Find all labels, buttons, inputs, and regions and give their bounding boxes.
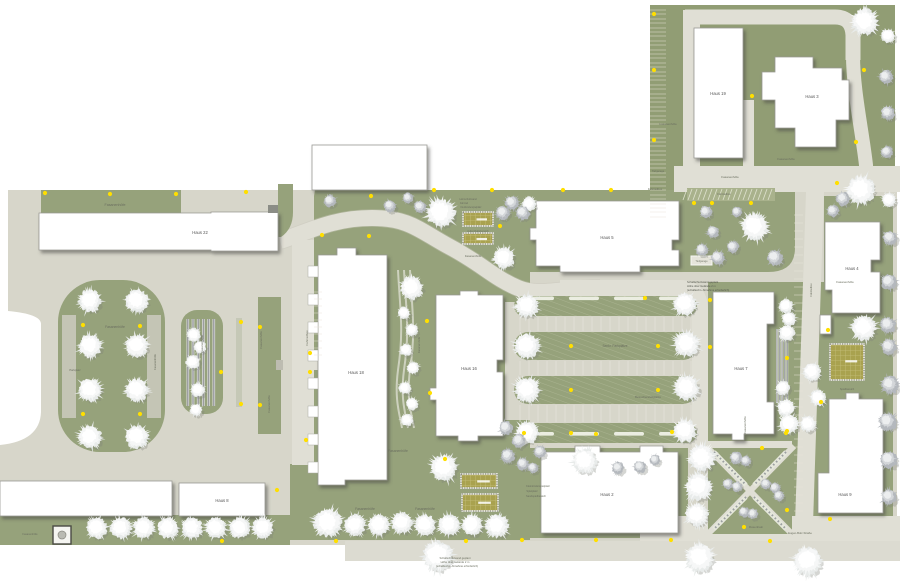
svg-text:Sandspielbereich: Sandspielbereich (526, 494, 546, 498)
svg-text:Haus 22: Haus 22 (192, 230, 208, 235)
svg-text:Rosenhain: Rosenhain (749, 525, 764, 529)
svg-text:Fasanenhöfe: Fasanenhöfe (415, 507, 435, 511)
svg-text:Aufenthaltsbereich: Aufenthaltsbereich (467, 229, 489, 233)
svg-text:Fasanenhöfe: Fasanenhöfe (105, 325, 125, 329)
svg-text:Tiefgarage: Tiefgarage (695, 259, 708, 263)
svg-text:Kleinkinderspielplatz: Kleinkinderspielplatz (461, 206, 483, 209)
svg-text:Fasanenhöfe: Fasanenhöfe (465, 254, 482, 258)
svg-text:Fasanenhöfe: Fasanenhöfe (388, 449, 408, 453)
svg-text:Eugen-Bolz-Straße: Eugen-Bolz-Straße (788, 531, 812, 535)
svg-text:Haus 2: Haus 2 (600, 492, 614, 497)
svg-text:Fasanenhöfe: Fasanenhöfe (200, 335, 204, 353)
svg-text:(schalltechn. Abnahme erforder: (schalltechn. Abnahme erforderlich) (687, 288, 729, 292)
svg-text:Haus 16: Haus 16 (461, 366, 477, 371)
svg-text:Haus 7: Haus 7 (734, 366, 748, 371)
svg-text:Fasanenhöfe: Fasanenhöfe (777, 157, 795, 161)
svg-text:Fasanenhöfe: Fasanenhöfe (355, 507, 375, 511)
svg-text:Spielplatz: Spielplatz (526, 489, 538, 493)
svg-text:Fasanenhöfe: Fasanenhöfe (22, 532, 38, 536)
svg-text:Schallschutzwand geplant: Schallschutzwand geplant (687, 280, 718, 284)
svg-text:Fasanenhöfe: Fasanenhöfe (743, 416, 747, 434)
svg-text:Fasanenhöfe: Fasanenhöfe (153, 354, 157, 370)
svg-text:Fasanenhöfe: Fasanenhöfe (721, 175, 739, 179)
svg-text:Haus 5: Haus 5 (600, 235, 614, 240)
svg-text:Senkr. Parkplätze: Senkr. Parkplätze (603, 344, 628, 348)
svg-text:(schalltechn. Abnahme erforder: (schalltechn. Abnahme erforderlich) (436, 564, 478, 568)
svg-text:Fasanenhöfe: Fasanenhöfe (105, 203, 126, 207)
svg-text:Haus 8: Haus 8 (215, 498, 229, 503)
svg-text:Fasanenhöfe: Fasanenhöfe (267, 395, 271, 413)
svg-text:Fahrradbox: Fahrradbox (717, 192, 731, 196)
svg-text:Fasanenhöfe: Fasanenhöfe (417, 336, 421, 353)
svg-text:Besucherstellplätze: Besucherstellplätze (635, 395, 661, 399)
svg-text:Schallschutzwand geplant: Schallschutzwand geplant (439, 556, 470, 560)
svg-text:Tiefgarage: Tiefgarage (652, 169, 665, 173)
svg-text:Fahrradbox: Fahrradbox (809, 283, 813, 297)
svg-text:Fahrrad: Fahrrad (460, 202, 469, 205)
svg-text:Fasanenhöfe: Fasanenhöfe (259, 331, 263, 349)
svg-text:Haus 4: Haus 4 (845, 266, 859, 271)
svg-text:Haus 9: Haus 9 (838, 492, 852, 497)
svg-text:Haus 18: Haus 18 (348, 370, 364, 375)
svg-text:Fasanenhöfe: Fasanenhöfe (659, 122, 677, 126)
svg-text:Haus 3: Haus 3 (805, 94, 819, 99)
svg-text:Fasanenhöfe: Fasanenhöfe (836, 280, 854, 284)
svg-text:Parkplatz: Parkplatz (69, 368, 81, 372)
svg-text:Haus 19: Haus 19 (710, 91, 726, 96)
svg-text:Höhe über Gelände 2 m: Höhe über Gelände 2 m (441, 560, 470, 564)
svg-text:Kleinkinderspielplatz: Kleinkinderspielplatz (526, 484, 550, 488)
svg-text:Höhe über Gelände 2 m: Höhe über Gelände 2 m (687, 284, 716, 288)
svg-text:Fahrradbox: Fahrradbox (648, 187, 663, 191)
svg-text:Lärmschutzwand: Lärmschutzwand (459, 198, 477, 201)
svg-text:Spielbereich: Spielbereich (840, 387, 855, 391)
svg-text:Fahrradbox: Fahrradbox (305, 330, 309, 346)
